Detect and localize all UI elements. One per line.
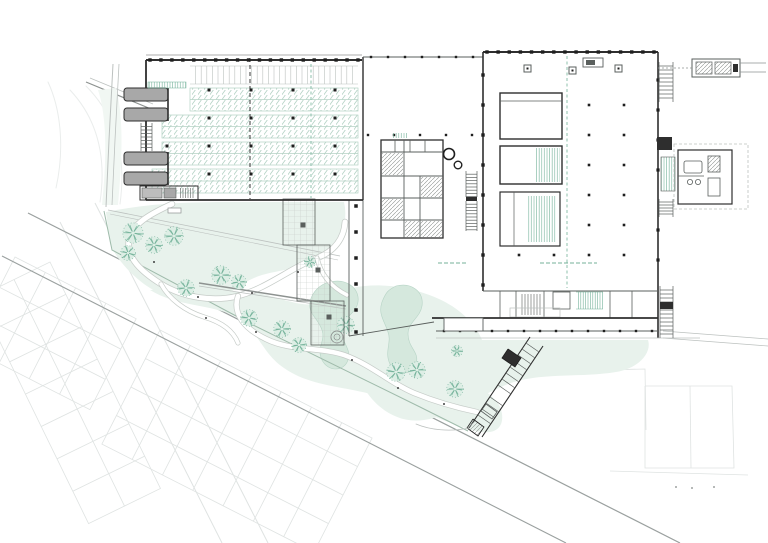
north-walkway — [658, 59, 766, 77]
parking-building — [106, 55, 363, 207]
landscape-park — [98, 88, 649, 432]
site-plan-canvas — [0, 0, 768, 543]
architectural-site-plan — [0, 0, 768, 543]
east-annex — [674, 144, 748, 209]
main-building — [432, 50, 700, 338]
